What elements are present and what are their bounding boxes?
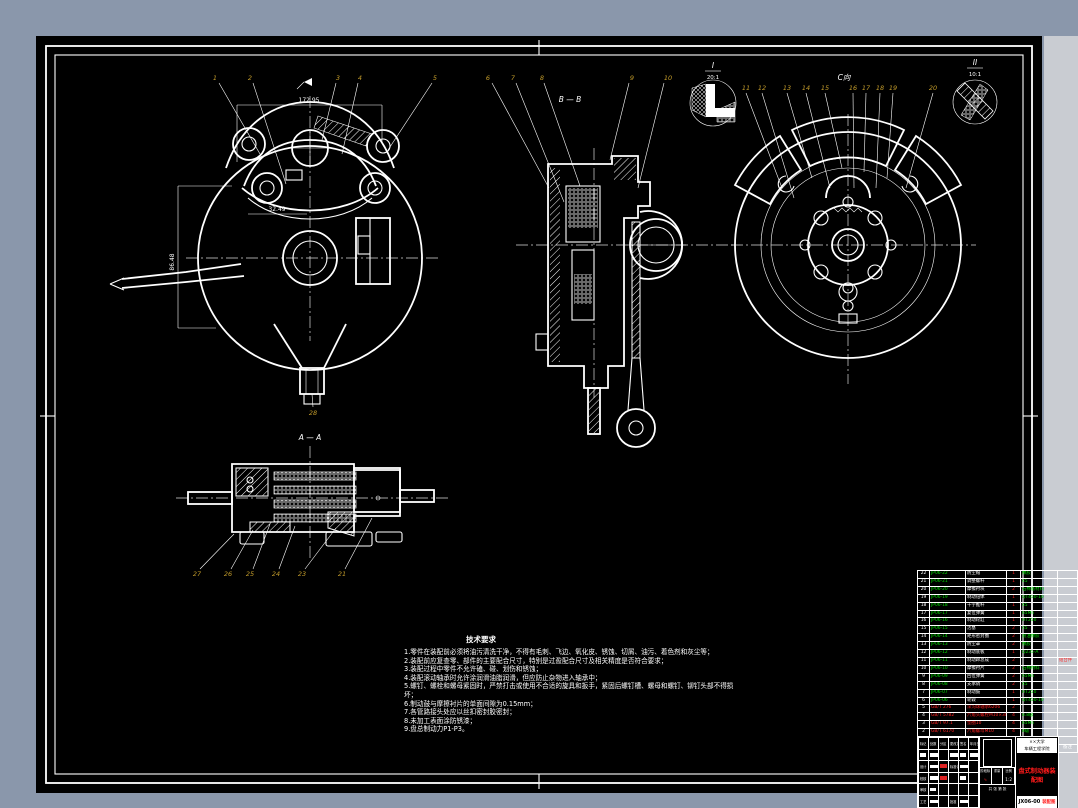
tech-notes-title: 技术要求 (404, 634, 734, 645)
sheet-count: 共 张 第 张 (980, 784, 1015, 794)
bom-row: 16 JP06-16 制动轮缸 1 HT250 (918, 618, 1078, 626)
bom-row: 9 JP06-09 回位弹簧 2 65Mn (918, 673, 1078, 681)
bom-row: 19 JP06-19 制动钳体 1 QT450-10 (918, 594, 1078, 602)
bom-row: 15 JP06-15 活塞 2 45 (918, 626, 1078, 634)
balloon-21: 21 (338, 570, 346, 578)
cad-viewer-window: 172.95 32.49 86.48 1 2 3 4 (0, 0, 1078, 808)
dim-overall: 172.95 (299, 97, 320, 104)
bom-row: 6 JP06-06 轮毂 1 QT450-10 (918, 697, 1078, 705)
drawing-title: 盘式制动器装配图 (1016, 754, 1058, 795)
balloon-24: 24 (272, 570, 280, 578)
bom-row: 5 GB/T 276 深沟球轴承6206 2 (918, 705, 1078, 713)
bom-row: 21 JP06-21 调整螺杆 1 45 (918, 578, 1078, 586)
section-aa-view: A — A (176, 433, 448, 578)
balloon-8: 8 (540, 74, 544, 82)
balloon-14: 14 (802, 84, 810, 92)
balloon-18: 18 (876, 84, 884, 92)
rear-view: C向 (731, 73, 976, 384)
bom-row: 4 GB/T 5782 六角头螺栓M10×30 4 8.8级 (918, 713, 1078, 721)
balloon-5: 5 (433, 74, 437, 82)
tech-note-line: 7.各管路接头处应以丝扣密封胶密封； (404, 708, 734, 717)
tech-note-line: 1.零件在装配前必须将油污清洗干净，不得有毛刺、飞边、氧化皮、锈蚀、切屑、油污、… (404, 648, 734, 657)
title-block-stamp-area: 阶段标记 重量 比例 ∿ 1:2 共 张 第 张 (980, 737, 1016, 808)
balloon-10: 10 (664, 74, 672, 82)
section-bb-label: B — B (559, 95, 582, 104)
balloon-7: 7 (511, 74, 516, 82)
balloon-4: 4 (358, 74, 362, 82)
bom-row: 13 JP06-13 防尘罩 2 橡胶 (918, 642, 1078, 650)
balloon-15: 15 (821, 84, 829, 92)
drawing-number-box: JX06-00 装配图 (1017, 796, 1057, 808)
balloon-26: 26 (224, 570, 232, 578)
bom-row: 14 JP06-14 矩形密封圈 2 耐油橡胶 (918, 634, 1078, 642)
dim-height: 86.48 (169, 253, 176, 270)
drawing-sheet: 172.95 32.49 86.48 1 2 3 4 (36, 36, 1042, 793)
bom-row: 12 JP06-12 制动底板 1 Q235-A (918, 650, 1078, 658)
balloon-20: 20 (929, 84, 937, 92)
tech-note-line: 2.装配前应复查零、部件的主要配合尺寸，特别是过盈配合尺寸及相关精度是否符合要求… (404, 657, 734, 666)
detail-ii-view: II 10:1 (953, 58, 997, 124)
bom-row: 8 JP06-08 支承销 2 45 (918, 681, 1078, 689)
scale-value: 1:2 (1003, 775, 1015, 784)
balloon-17: 17 (862, 84, 871, 92)
title-block: 标记处数 分区更改文件号 签名年月日 设计标准化 校核 审核 工艺批准 阶段标记… (917, 736, 1059, 808)
tech-notes-lines: 1.零件在装配前必须将油污清洗干净，不得有毛刺、飞边、氧化皮、锈蚀、切屑、油污、… (404, 648, 734, 734)
bom-row: 11 JP06-11 制动蹄总成 2 组合件 (918, 657, 1078, 665)
tech-note-line: 5.螺钉、螺栓和螺母紧固时，严禁打击或使用不合适的旋具和扳手，紧固后螺钉槽、螺母… (404, 682, 734, 699)
balloon-2: 2 (248, 74, 252, 82)
organization-box: ××大学 车辆工程学院 (1017, 738, 1057, 753)
balloon-9: 9 (630, 74, 634, 82)
bom-row: 18 JP06-18 十字推杆 1 45 (918, 602, 1078, 610)
balloon-16: 16 (849, 84, 857, 92)
bom-row: 7 JP06-07 制动鼓 1 HT250 (918, 689, 1078, 697)
tech-notes: 技术要求 1.零件在装配前必须将油污清洗干净，不得有毛刺、飞边、氧化皮、锈蚀、切… (404, 634, 734, 734)
bom-table: 22 JP06-22 防尘帽 1 橡胶 21 JP06-21 调整螺杆 1 45… (917, 570, 1059, 753)
tech-note-line: 9.盘总制动力P1-P3。 (404, 725, 734, 734)
balloon-27: 27 (193, 570, 202, 578)
balloon-23: 23 (298, 570, 306, 578)
bom-row: 3 GB/T 97.1 垫圈10 4 65Mn (918, 721, 1078, 729)
detail-ii-scale: 10:1 (969, 72, 981, 78)
balloon-11: 11 (742, 84, 750, 92)
balloon-1: 1 (213, 74, 217, 82)
bom-row: 20 JP06-20 摩擦衬块 2 石棉基材料 (918, 586, 1078, 594)
section-bb-view: B — B (486, 74, 736, 447)
balloon-6: 6 (486, 74, 490, 82)
bom-row: 17 JP06-17 复位弹簧 1 65Mn (918, 610, 1078, 618)
detail-i-label: I (712, 61, 715, 70)
detail-ii-label: II (973, 58, 978, 67)
tech-note-line: 6.制动鼓与摩擦衬片的单面间隙为0.15mm； (404, 700, 734, 709)
dim-offset: 32.49 (268, 206, 285, 213)
section-aa-label: A — A (298, 433, 322, 442)
balloon-28: 28 (309, 409, 317, 417)
balloon-13: 13 (783, 84, 791, 92)
balloon-3: 3 (336, 74, 340, 82)
stamp-box (983, 739, 1012, 767)
bom-row: 22 JP06-22 防尘帽 1 橡胶 (918, 571, 1078, 579)
title-block-signatures: 标记处数 分区更改文件号 签名年月日 设计标准化 校核 审核 工艺批准 (918, 737, 980, 808)
balloon-12: 12 (758, 84, 766, 92)
balloon-19: 19 (889, 84, 897, 92)
detail-i-view: I 20:1 (690, 61, 736, 126)
rear-view-label: C向 (838, 73, 852, 82)
bom-row: 10 JP06-10 摩擦衬片 2 石棉材料 (918, 665, 1078, 673)
title-block-right: ××大学 车辆工程学院 盘式制动器装配图 JX06-00 装配图 (1016, 737, 1058, 808)
balloon-25: 25 (246, 570, 254, 578)
tech-note-line: 3.装配过程中零件不允许磕、碰、划伤和锈蚀； (404, 665, 734, 674)
front-view: 172.95 32.49 86.48 1 2 3 4 (110, 74, 441, 417)
